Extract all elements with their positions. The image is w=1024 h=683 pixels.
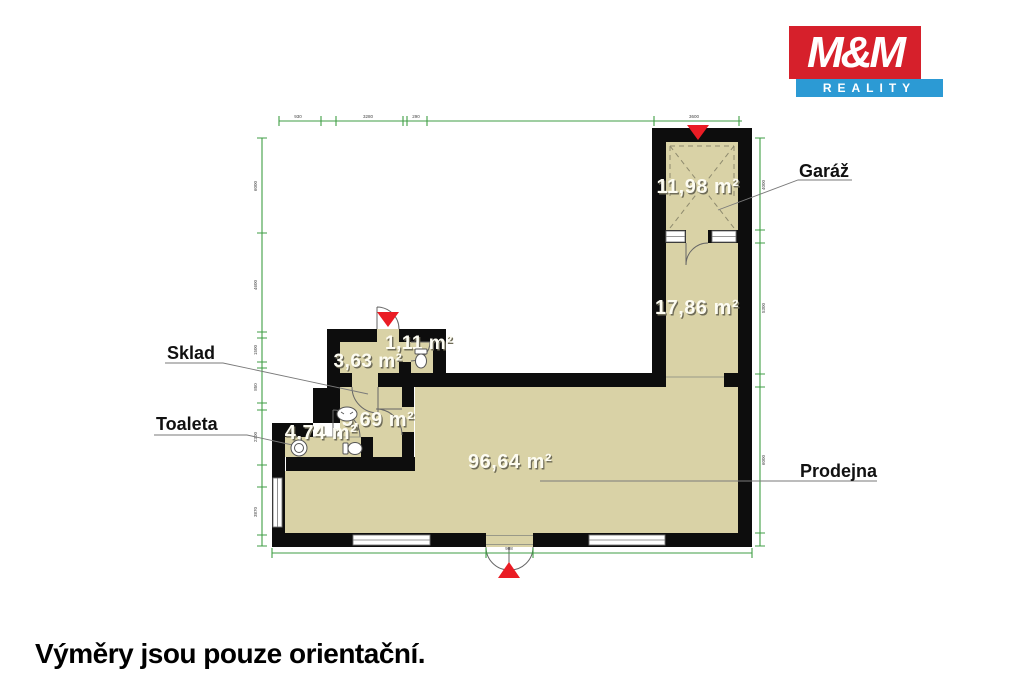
dim-right-3: 6000 [761,454,766,465]
dim-top-4: 3600 [689,114,700,119]
area-shop: 96,64 m² [468,451,552,473]
dim-top-3: 290 [412,114,420,119]
washbasin-icon-toilet-room [291,440,307,456]
area-backroom: 17,86 m² [655,297,739,319]
label-shop: Prodejna [800,461,878,481]
dim-left-4: 850 [253,383,258,391]
dim-left-1: 6000 [253,180,258,191]
dim-top-1: 930 [294,114,302,119]
room-fills [285,142,738,547]
sink-icon-hallway [337,407,357,421]
dim-left-6: 3870 [253,506,258,517]
backroom-opening-fill [666,373,724,387]
area-garage: 11,98 m² [657,176,740,198]
dim-right-1: 4000 [761,179,766,190]
entrance-marker-main [498,562,520,578]
label-toilet: Toaleta [156,414,219,434]
floorplan-page: 930 3280 290 3600 6000 4600 1500 850 230… [0,0,1024,683]
dim-top-2: 3280 [363,114,374,119]
dim-right-2: 5300 [761,302,766,313]
disclaimer-text: Výměry jsou pouze orientační. [35,638,425,670]
garage-door-gap-fill [686,230,708,243]
dim-bottom-1: 908 [505,546,513,551]
storage-door-gap-fill [352,373,378,387]
mm-reality-logo: M&M REALITY [789,26,949,97]
toilet-icon-toilet-room [343,443,362,455]
entrance-marker-side [377,312,399,327]
toilet-icon-small-wc [415,349,427,368]
label-garage: Garáž [799,161,849,181]
logo-bottom-box: REALITY [796,79,943,97]
label-storage: Sklad [167,343,215,363]
dim-left-3: 1500 [253,344,258,355]
logo-top-box: M&M [789,26,921,79]
floorplan-drawing: 930 3280 290 3600 6000 4600 1500 850 230… [0,0,1024,683]
dim-left-2: 4600 [253,279,258,290]
